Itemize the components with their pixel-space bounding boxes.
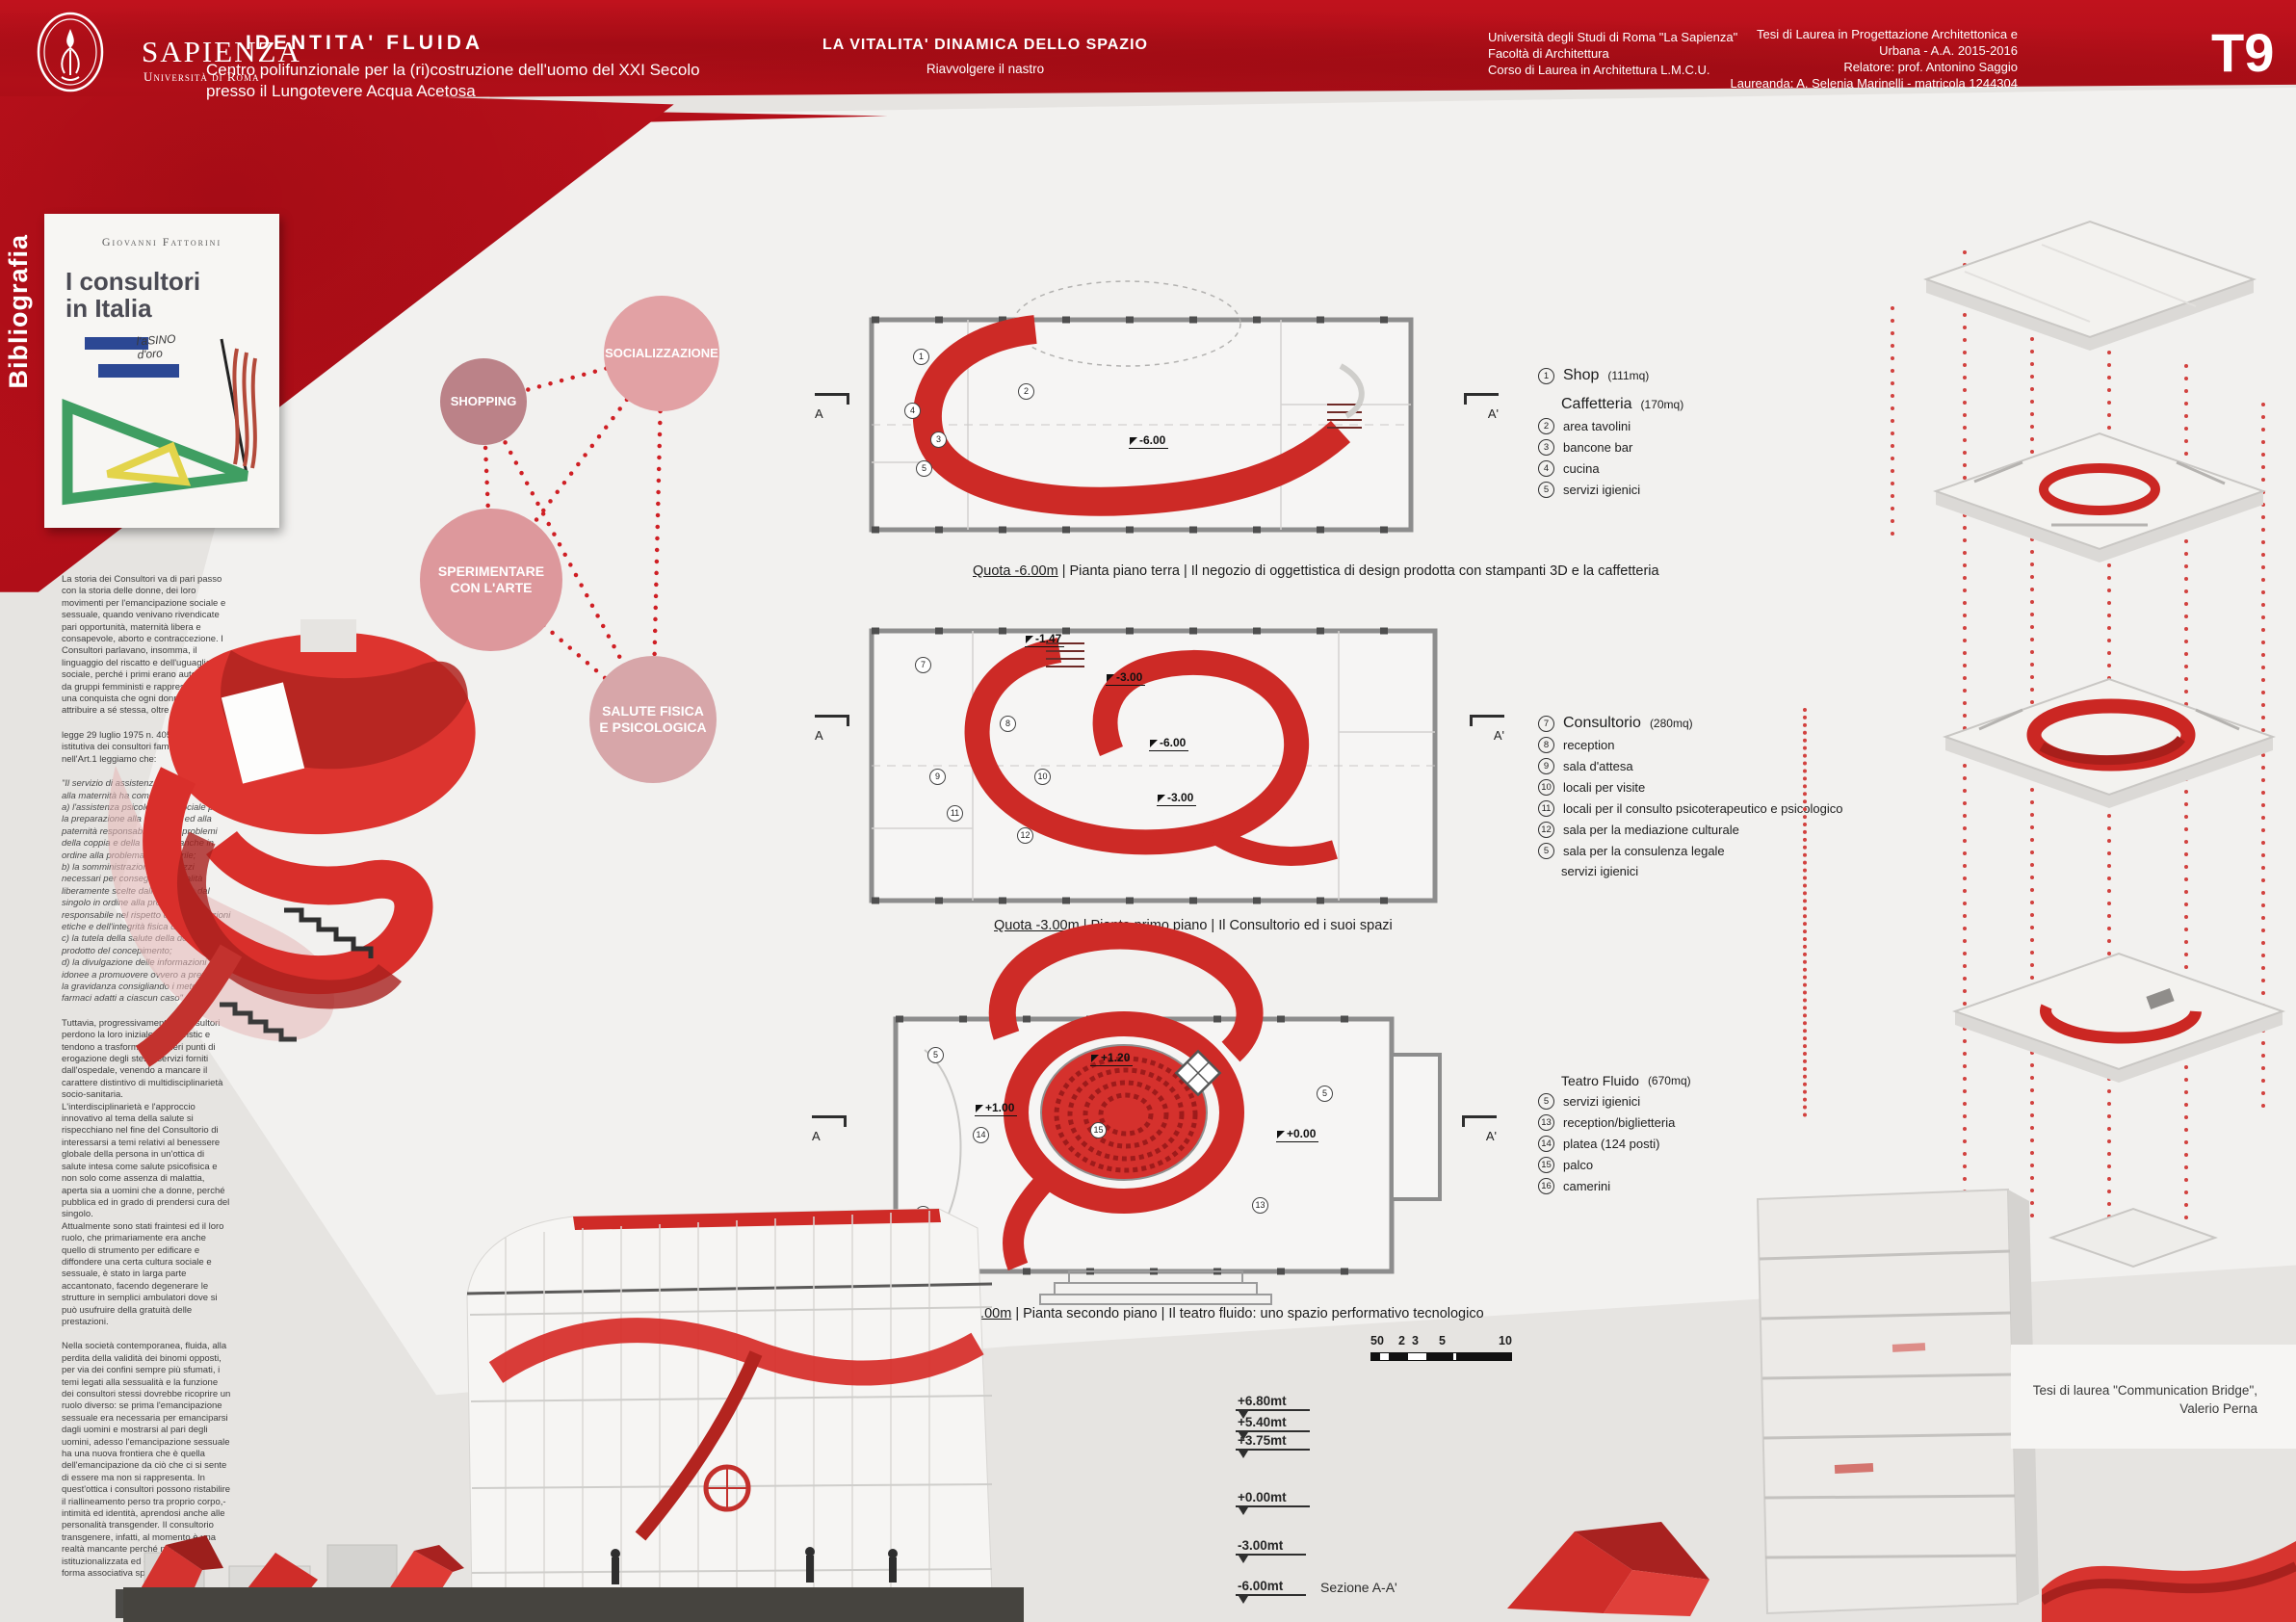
level-marker: +3.75mt <box>1236 1433 1310 1463</box>
book-cover: Giovanni Fattorini I consultori in Itali… <box>44 214 279 528</box>
bubble-salute: SALUTE FISICA E PSICOLOGICA <box>589 656 717 783</box>
scale-number: 3 <box>1412 1334 1419 1347</box>
poster-title: IDENTITA' FLUIDA <box>246 32 483 55</box>
bubble-socializzazione: SOCIALIZZAZIONE <box>604 296 719 411</box>
plan-room-number: 9 <box>929 769 946 785</box>
scale-number: 50 <box>1370 1334 1384 1347</box>
panel-number: T9 <box>2211 21 2274 84</box>
thesis-poster: SAPIENZA Università di Roma IDENTITA' FL… <box>0 0 2296 1622</box>
plan-first-floor-drawing <box>838 607 1493 925</box>
sapienza-logo-icon <box>33 10 108 94</box>
plan-room-number: 5 <box>916 460 932 477</box>
book-handwriting: l'aSINO d'oro <box>136 332 177 362</box>
bubble-shopping: SHOPPING <box>440 358 527 445</box>
plan-room-number: 5 <box>1317 1086 1333 1102</box>
section-marker-a: A <box>812 1115 847 1143</box>
plan-room-number: 1 <box>913 349 929 365</box>
legend-shop-caffetteria: 1 Shop(111mq) Caffetteria (170mq) 2area … <box>1538 367 1904 503</box>
red-ribbon-render <box>87 592 568 1117</box>
plan-room-number: 8 <box>1000 716 1016 732</box>
elevation-label: -3.00 <box>1106 670 1145 686</box>
section-label: Sezione A-A' <box>1320 1580 1397 1595</box>
poster-subtitle: Centro polifunzionale per la (ri)costruz… <box>206 60 861 102</box>
plan-room-number: 15 <box>1090 1122 1107 1138</box>
plan-room-number: 12 <box>1017 827 1033 844</box>
section-marker-a1: A' <box>1470 715 1504 743</box>
elevation-label: +0.00 <box>1276 1127 1318 1142</box>
exploded-axonometric-drawing <box>1859 188 2296 1315</box>
elevation-label: -6.00 <box>1129 433 1168 449</box>
plan-room-number: 14 <box>973 1127 989 1143</box>
plan-room-number: 13 <box>1252 1197 1268 1214</box>
scale-number: 2 <box>1398 1334 1405 1347</box>
level-marker: -6.00mt <box>1236 1579 1306 1609</box>
level-marker: +0.00mt <box>1236 1490 1310 1520</box>
plan-room-number: 2 <box>1018 383 1034 400</box>
center-subtitle: Riavvolgere il nastro <box>793 62 1178 76</box>
book-author: Giovanni Fattorini <box>44 235 279 249</box>
plan-caption: Quota -6.00m | Pianta piano terra | Il n… <box>973 563 1659 579</box>
legend-number: 1 <box>1538 368 1554 384</box>
book-title: I consultori in Italia <box>65 268 200 322</box>
plan-room-number: 7 <box>915 657 931 673</box>
level-marker: -3.00mt <box>1236 1538 1306 1568</box>
graphic-scale-bar <box>1370 1352 1512 1361</box>
ground-strip <box>123 1587 1024 1622</box>
elevation-label: -1.47 <box>1025 632 1064 647</box>
thesis-info: Tesi di Laurea in Progettazione Architet… <box>1729 26 2018 92</box>
section-perspective-render <box>438 1170 1031 1622</box>
section-marker-a1: A' <box>1464 393 1499 421</box>
elevation-label: -3.00 <box>1157 791 1196 806</box>
legend-consultorio: 7 Consultorio(280mq) 8reception 9sala d'… <box>1538 715 1904 883</box>
plan-room-number: 11 <box>947 805 963 822</box>
elevation-label: -6.00 <box>1149 736 1188 751</box>
plan-room-number: 3 <box>930 432 947 448</box>
elevation-label: +1.00 <box>975 1101 1017 1116</box>
plan-room-number: 4 <box>904 403 921 419</box>
scale-number: 5 <box>1439 1334 1446 1347</box>
plan-ground-floor-drawing <box>838 275 1474 578</box>
plan-room-number: 5 <box>927 1047 944 1063</box>
red-wave-render <box>2042 1474 2296 1622</box>
center-title: LA VITALITA' DINAMICA DELLO SPAZIO <box>793 37 1178 54</box>
red-sculpture-render <box>1488 1503 1729 1622</box>
section-marker-a1: A' <box>1462 1115 1497 1143</box>
axon-guide-dotline <box>1803 708 1807 1117</box>
sidebar-label: Bibliografia <box>4 234 34 389</box>
section-marker-a: A <box>815 393 849 421</box>
university-info: Università degli Studi di Roma "La Sapie… <box>1488 29 1737 78</box>
scale-number: 10 <box>1499 1334 1512 1347</box>
reference-credit: Tesi di laurea "Communication Bridge", V… <box>2033 1381 2257 1418</box>
plan-room-number: 10 <box>1034 769 1051 785</box>
section-marker-a: A <box>815 715 849 743</box>
elevation-label: +1.20 <box>1090 1051 1133 1066</box>
